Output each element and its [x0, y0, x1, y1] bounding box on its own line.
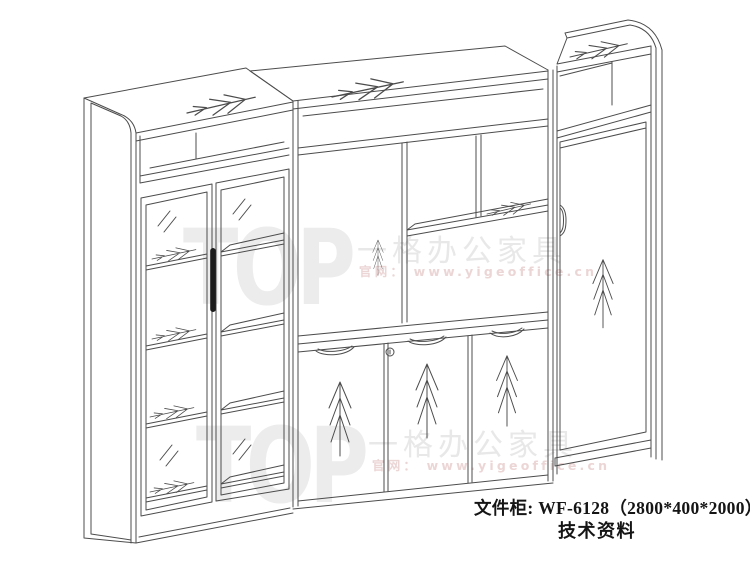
- pine-grain-icon: [373, 240, 384, 276]
- side-panel: [84, 98, 136, 543]
- top-panel: [250, 46, 548, 109]
- cabinet-technical-drawing: [0, 0, 750, 562]
- base-rail: [136, 508, 293, 543]
- middle-unit: [250, 46, 553, 509]
- glass-reflection-icon: [233, 199, 251, 220]
- door-handle: [210, 248, 216, 312]
- glass-reflection-icon: [158, 211, 176, 232]
- counter-shelf: [298, 312, 548, 344]
- upper-shelf: [298, 89, 548, 155]
- caption-subtitle-line: 技术资料: [558, 517, 636, 543]
- left-unit: [84, 68, 293, 543]
- top-panel: [557, 20, 662, 72]
- top-compartment: [557, 62, 651, 138]
- glass-door-left: [141, 184, 212, 516]
- shelves-right-pane: [221, 233, 284, 488]
- door-dividers: [384, 335, 472, 492]
- top-compartment: [140, 133, 289, 183]
- technical-drawing-page: TOP 一格办公家具 官网： www.yigeoffice.cn TOP 一格办…: [0, 0, 750, 562]
- pine-grain-icon: [416, 364, 438, 438]
- door-scoop-handle: [408, 336, 446, 345]
- glass-reflection-icon: [160, 445, 178, 466]
- shelves-left-pane: [146, 254, 207, 502]
- door-recess-handle: [560, 205, 566, 236]
- vertical-divider: [402, 142, 407, 323]
- pine-grain-icon: [497, 356, 518, 426]
- pine-grain-icon: [329, 382, 351, 456]
- base-rail: [555, 440, 651, 466]
- pine-grain-icon: [593, 260, 613, 328]
- wood-grain-arrow-icon: [149, 477, 195, 497]
- side-panel: [651, 46, 662, 460]
- right-unit: [555, 20, 662, 474]
- vertical-divider: [476, 135, 481, 217]
- glass-reflection-icon: [233, 439, 251, 460]
